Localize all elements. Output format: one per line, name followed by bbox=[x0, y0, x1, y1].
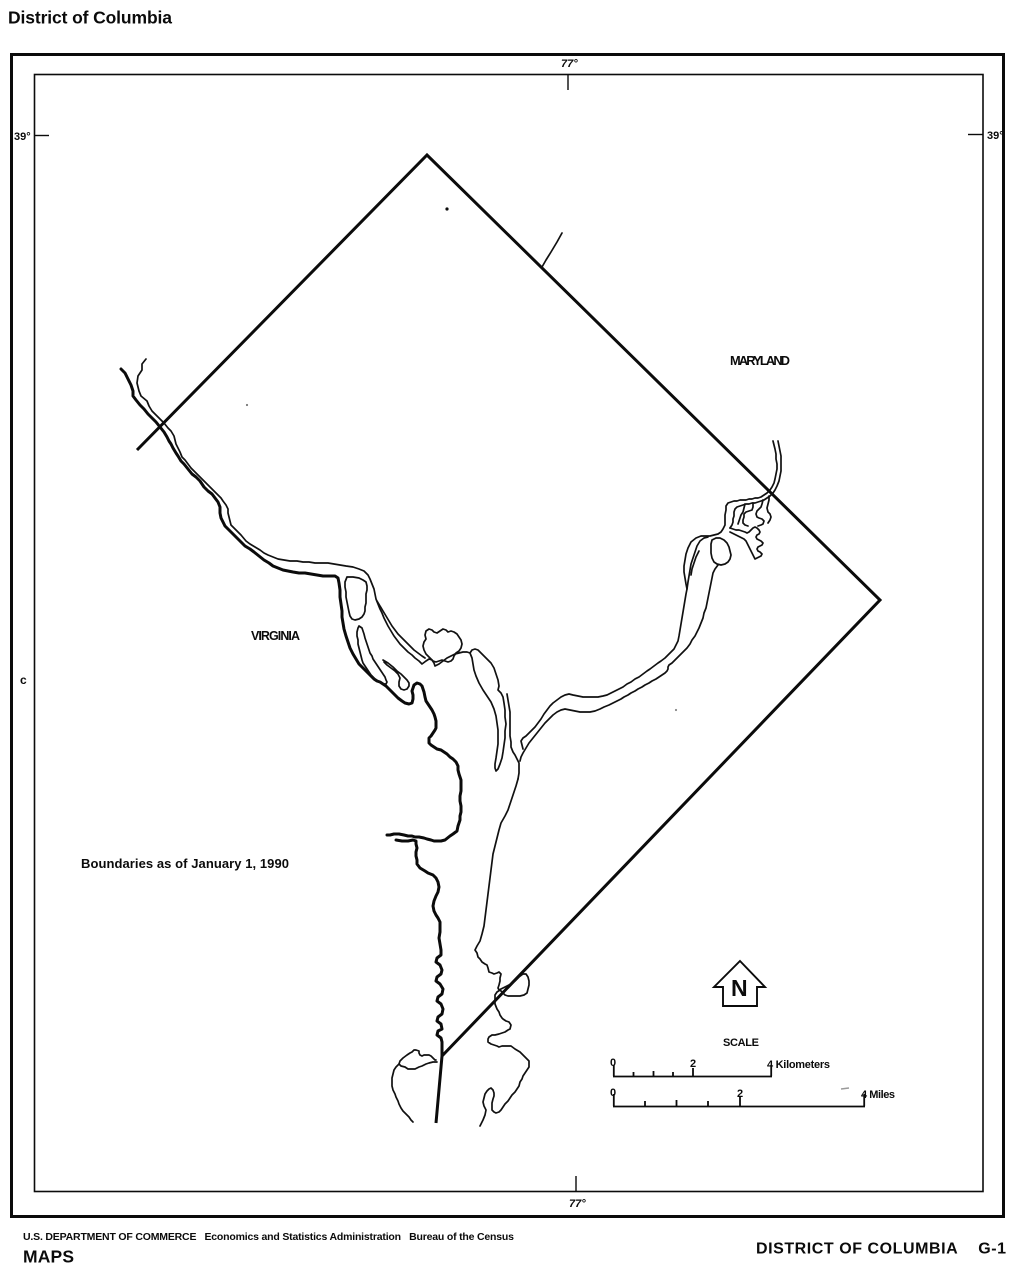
svg-text:VIRGINIA: VIRGINIA bbox=[251, 629, 301, 643]
svg-text:Boundaries as of January 1, 19: Boundaries as of January 1, 1990 bbox=[81, 856, 289, 871]
svg-text:U.S. DEPARTMENT OF COMMERCE: U.S. DEPARTMENT OF COMMERCE Economics an… bbox=[23, 1231, 514, 1243]
svg-text:DISTRICT OF COLUMBIA G-1: DISTRICT OF COLUMBIA G-1 bbox=[756, 1241, 1006, 1258]
svg-text:4 Kilometers: 4 Kilometers bbox=[767, 1059, 830, 1071]
svg-text:District of Columbia: District of Columbia bbox=[8, 8, 172, 28]
svg-text:39°: 39° bbox=[14, 131, 31, 143]
svg-text:0: 0 bbox=[610, 1087, 616, 1099]
svg-text:2: 2 bbox=[737, 1088, 743, 1100]
svg-text:MAPS: MAPS bbox=[23, 1247, 74, 1266]
svg-text:39°: 39° bbox=[987, 130, 1004, 142]
svg-text:77°: 77° bbox=[569, 1198, 586, 1210]
svg-text:N: N bbox=[731, 975, 748, 1001]
svg-text:0: 0 bbox=[610, 1057, 616, 1069]
svg-text:MARYLAND: MARYLAND bbox=[730, 353, 791, 368]
svg-text:2: 2 bbox=[690, 1058, 696, 1070]
svg-text:SCALE: SCALE bbox=[723, 1037, 759, 1049]
svg-text:c: c bbox=[20, 673, 27, 687]
svg-text:4 Miles: 4 Miles bbox=[861, 1089, 895, 1101]
svg-text:77°: 77° bbox=[561, 58, 578, 70]
